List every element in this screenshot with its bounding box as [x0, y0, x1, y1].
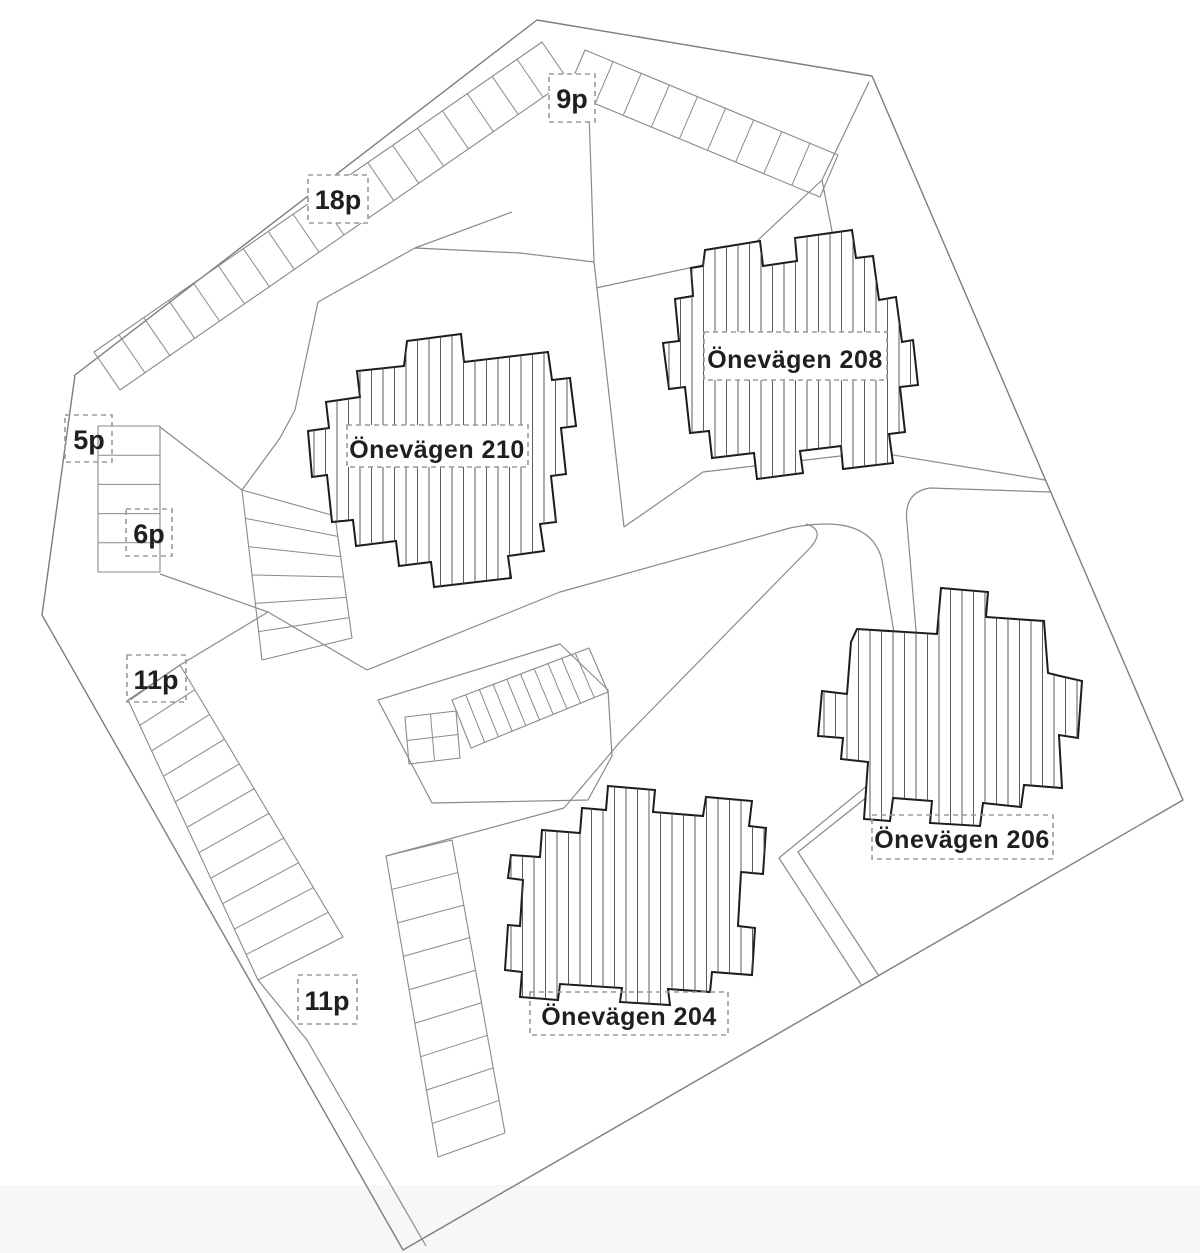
parking-label: 9p [556, 84, 588, 114]
parking-label: 18p [315, 185, 362, 215]
building-label: Önevägen 206 [874, 825, 1050, 854]
building-204-footprint [505, 786, 766, 1005]
buildings [308, 228, 1082, 1007]
site-plan-page: 9p 18p 5p 6p 11p 11p Önevägen 210 Öneväg… [0, 0, 1200, 1253]
parking-areas [94, 42, 838, 1157]
parking-strip-9p [567, 50, 838, 197]
parking-strip-south [386, 840, 505, 1157]
parking-strip-5p-6p [98, 426, 160, 572]
parking-label: 11p [133, 665, 178, 695]
label-onevagen-210: Önevägen 210 [347, 425, 528, 467]
parking-label: 5p [73, 425, 105, 455]
building-label: Önevägen 208 [707, 345, 883, 374]
label-9p: 9p [549, 74, 595, 122]
utility-square [405, 711, 460, 764]
parking-strip-central [452, 648, 608, 748]
label-11p-west: 11p [127, 655, 186, 702]
parking-label: 6p [133, 519, 165, 549]
label-6p: 6p [126, 509, 172, 556]
site-plan-svg: 9p 18p 5p 6p 11p 11p Önevägen 210 Öneväg… [0, 0, 1200, 1253]
page-edge-strip [0, 1185, 1200, 1253]
building-label: Önevägen 210 [349, 435, 525, 464]
label-onevagen-208: Önevägen 208 [704, 332, 887, 380]
label-11p-south: 11p [298, 975, 357, 1024]
label-18p: 18p [308, 175, 368, 223]
parking-label: 11p [304, 986, 349, 1016]
building-label: Önevägen 204 [541, 1002, 717, 1031]
